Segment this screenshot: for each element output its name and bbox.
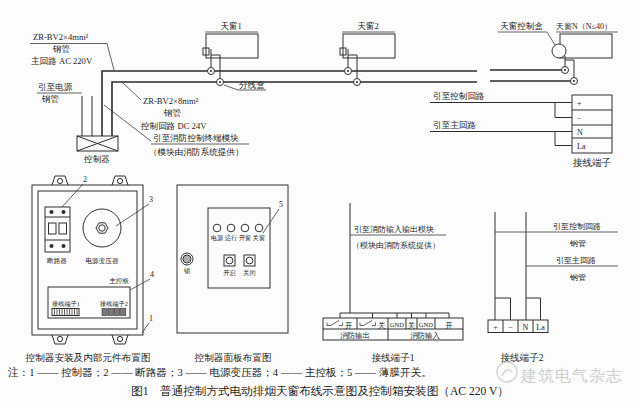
board-terminal2-cell-1 (102, 309, 107, 316)
ear-hole-1 (57, 178, 62, 183)
watermark-logo-icon (497, 362, 517, 382)
skylight-2-control-junction-dot (356, 81, 358, 83)
open-button-dot (226, 257, 233, 264)
terminal2-risers (495, 212, 526, 298)
terminal1-cell-open1: 开 (345, 321, 353, 330)
ctrl-spec-leader (122, 82, 141, 100)
watermark-text: 建筑电气杂志 (520, 367, 623, 384)
watermark-logo-swirl (502, 370, 512, 376)
skylight-n: 天窗N（N≤40） 天窗控制盒 (498, 21, 618, 85)
terminal-cell-n: N (577, 128, 583, 137)
skylight-ctrl-box-leader (498, 32, 555, 45)
main-circuit-label: 主回路 AC 220V (31, 56, 93, 66)
lock-label: 锁 (183, 267, 190, 274)
skylight-control-box-symbol (552, 44, 566, 58)
control-circuit-labels: ZR-BV2×8mm² 钢管 控制回路 DC 24V (122, 82, 207, 131)
light-power-icon (213, 224, 221, 232)
skylight-2-label: 天窗2 (357, 21, 378, 31)
transformer-shaft (99, 225, 105, 231)
skylight-1-box (206, 34, 258, 58)
terminal-cell-la: La (577, 142, 586, 151)
skylight-1: 天窗1 分线盒 (203, 21, 266, 90)
terminal1-comb-bus (340, 313, 449, 318)
fire-module-label-2: （模块由消防系统提供） (149, 147, 244, 157)
terminal2-cell-la: La (536, 323, 545, 332)
to-main-circuit-label: 引至主回路 (433, 120, 476, 130)
transformer-label: 电源变压器 (86, 257, 119, 265)
callout-1: 1 (149, 314, 153, 323)
callout-5-leader (263, 209, 279, 233)
breaker-terminal-1 (50, 210, 54, 214)
terminal2-brackets (495, 298, 541, 320)
skylight-1-control-junction-dot (219, 81, 221, 83)
light-open-label: 开窗 (239, 234, 251, 242)
board-terminal2-cell-4 (121, 309, 126, 316)
watermark: 建筑电气杂志 (497, 362, 623, 384)
terminal1-lead-label-2: （模块由消防系统提供） (352, 241, 440, 250)
board-terminal2-cell-3 (114, 309, 119, 316)
power-feed-labels: 引至电源 钢管 (37, 82, 82, 104)
ctrl-spec-label: ZR-BV2×8mm² (143, 96, 199, 106)
skylight-n-control-junction-dot (573, 80, 575, 82)
panel-indicator-lights: 电源 运行 开窗 关窗 (211, 224, 265, 242)
close-button-dot (246, 257, 253, 264)
to-power-label: 引至电源 (38, 82, 73, 92)
callout-2-leader (62, 184, 83, 207)
controller-x-mark (77, 136, 118, 151)
terminal1-cell-close1: 关 (378, 321, 386, 330)
skylight-1-wires (211, 49, 220, 82)
circuit-breaker-symbol: 断路器 (45, 207, 70, 265)
terminal-strip-2-diagram: 引至控制回路 钢管 引至主回路 钢管 + − N La 接线端子2 (488, 212, 618, 363)
terminal1-cell-gnd1: GND (390, 321, 405, 328)
terminal2-lead-main-label: 引至主回路 (556, 256, 596, 265)
main-spec-label: ZR-BV2×4mm² (33, 32, 89, 42)
main-board-label: 主控板 (109, 277, 129, 284)
callout-4-leader (130, 279, 150, 290)
terminal2-lead-control-label: 引至控制回路 (553, 222, 601, 231)
ear-hole-3 (57, 336, 62, 341)
light-close-icon (255, 224, 263, 232)
skylight-2-main-junction-dot (347, 70, 349, 72)
main-circuit-labels: ZR-BV2×4mm² 钢管 主回路 AC 220V (30, 32, 114, 70)
fire-module-label-1: 引至消防控制终端模块 (153, 133, 239, 143)
close-button-label: 关闭 (243, 269, 255, 277)
ctrl-circuit-label: 控制回路 DC 24V (141, 121, 207, 131)
breaker-terminal-4 (62, 244, 66, 248)
skylight-n-main-junction-dot (564, 69, 566, 71)
diagram-canvas: 控制器 ZR-BV2×4mm² 钢管 主回路 AC 220V 引至电源 钢管 Z… (0, 0, 640, 402)
panel-face (208, 208, 270, 288)
ear-hole-2 (117, 178, 122, 183)
light-run-label: 运行 (225, 234, 237, 242)
terminal-block-caption: 接线端子 (573, 157, 612, 168)
callout-5: 5 (279, 200, 283, 209)
wiring-diagram-page: 控制器 ZR-BV2×4mm² 钢管 主回路 AC 220V 引至电源 钢管 Z… (0, 0, 640, 402)
callout-3: 3 (149, 195, 153, 204)
terminal1-cell-open2: 开 (445, 321, 453, 330)
terminal2-cell-minus: − (508, 323, 513, 332)
control-circuit-bracket (430, 103, 572, 118)
panel-buttons: 开启 关闭 (223, 255, 255, 277)
light-run-icon (227, 224, 235, 232)
terminal2-cell-plus: + (493, 323, 498, 332)
breaker-terminal-2 (62, 210, 66, 214)
skylight-1-main-junction-dot (210, 70, 212, 72)
transformer-body (83, 209, 121, 247)
controller-symbol: 控制器 (77, 136, 118, 164)
terminal1-cell-close2: 关 (408, 321, 416, 330)
light-close-label: 关窗 (253, 234, 265, 242)
board-terminal1-strip (52, 309, 79, 316)
terminal1-lead-label-1: 引至消防输入输出模块 (354, 225, 434, 234)
panel-caption: 控制器面板布置图 (194, 352, 272, 363)
main-circuit-bracket (430, 132, 572, 146)
skylight-ctrl-box-label: 天窗控制盒 (500, 21, 543, 31)
breaker-label: 断路器 (47, 257, 67, 265)
terminal2-cell-n: N (523, 323, 529, 332)
footer: 注：1 —— 控制器；2 —— 断路器；3 —— 电源变压器；4 —— 主控板；… (8, 362, 623, 398)
skylight-n-box (560, 34, 612, 58)
board-terminal2-label: 接线端子2 (100, 300, 128, 308)
figure-caption: 图1 普通控制方式电动排烟天窗布线示意图及控制箱安装图（AC 220 V） (131, 384, 509, 398)
lock-keyway-icon (185, 256, 189, 262)
terminal1-group-input: 消防输入 (410, 331, 440, 340)
no-contact-symbol-open (327, 321, 343, 326)
terminal2-conduit1-label: 钢管 (569, 239, 586, 248)
skylight-1-label: 天窗1 (220, 21, 241, 31)
transformer-symbol: 电源变压器 (83, 209, 121, 265)
skylight-n-label: 天窗N（N≤40） (556, 22, 612, 31)
board-terminal1-label: 接线端子1 (52, 300, 80, 308)
top-wiring-schematic: 控制器 ZR-BV2×4mm² 钢管 主回路 AC 220V 引至电源 钢管 Z… (30, 21, 618, 168)
terminal-strip-1-diagram: 引至消防输入输出模块 （模块由消防系统提供） 开 关 GND 关 GND 开 消… (323, 203, 463, 363)
terminal1-caption: 接线端子1 (371, 352, 414, 363)
breaker-terminal-3 (50, 244, 54, 248)
to-control-circuit-label: 引至控制回路 (433, 91, 485, 101)
cabinet-caption: 控制器安装及内部元件布置图 (25, 352, 151, 363)
terminal1-cell-gnd2: GND (419, 321, 434, 328)
power-feed-risers (82, 96, 92, 136)
terminal1-group-output: 消防输出 (340, 331, 370, 340)
panel-lock: 锁 (181, 253, 193, 274)
skylight-2-box (343, 34, 395, 58)
legend-note: 注：1 —— 控制器；2 —— 断路器；3 —— 电源变压器；4 —— 主控板；… (8, 366, 432, 378)
terminal2-conduit2-label: 钢管 (569, 273, 586, 282)
ear-hole-4 (117, 336, 122, 341)
terminal-cell-minus: − (577, 114, 582, 123)
right-terminal-block: 引至控制回路 引至主回路 + − N La 接线端子 (430, 91, 612, 168)
terminal-cell-plus: + (577, 99, 582, 108)
callout-2: 2 (83, 175, 87, 184)
breaker-window-2 (59, 223, 67, 234)
light-power-label: 电源 (211, 234, 224, 241)
board-terminal1-hatch (55, 309, 78, 316)
controller-label: 控制器 (84, 154, 110, 164)
no-contact-symbol-close (360, 321, 376, 326)
breaker-window-1 (49, 223, 57, 234)
light-open-icon (241, 224, 249, 232)
main-board: 主控板 接线端子1 接线端子2 (48, 277, 130, 318)
cabinet-layout-diagram: 断路器 电源变压器 主控板 接线端子1 接线端子2 2 3 4 (25, 175, 154, 363)
panel-layout-diagram: 电源 运行 开窗 关窗 开启 关闭 锁 5 控制器面板布置图 (177, 185, 288, 363)
skylight-2-wires (348, 49, 357, 82)
open-button-label: 开启 (223, 269, 235, 277)
ctrl-conduit-label: 钢管 (163, 108, 182, 118)
main-conduit-label: 钢管 (52, 44, 71, 54)
callout-4: 4 (150, 270, 154, 279)
callout-3-leader (116, 204, 149, 226)
skylight-2: 天窗2 (340, 21, 395, 86)
board-terminal2-cell-2 (108, 309, 113, 316)
power-conduit-label: 钢管 (41, 94, 60, 104)
junction-box-label: 分线盒 (239, 80, 265, 90)
